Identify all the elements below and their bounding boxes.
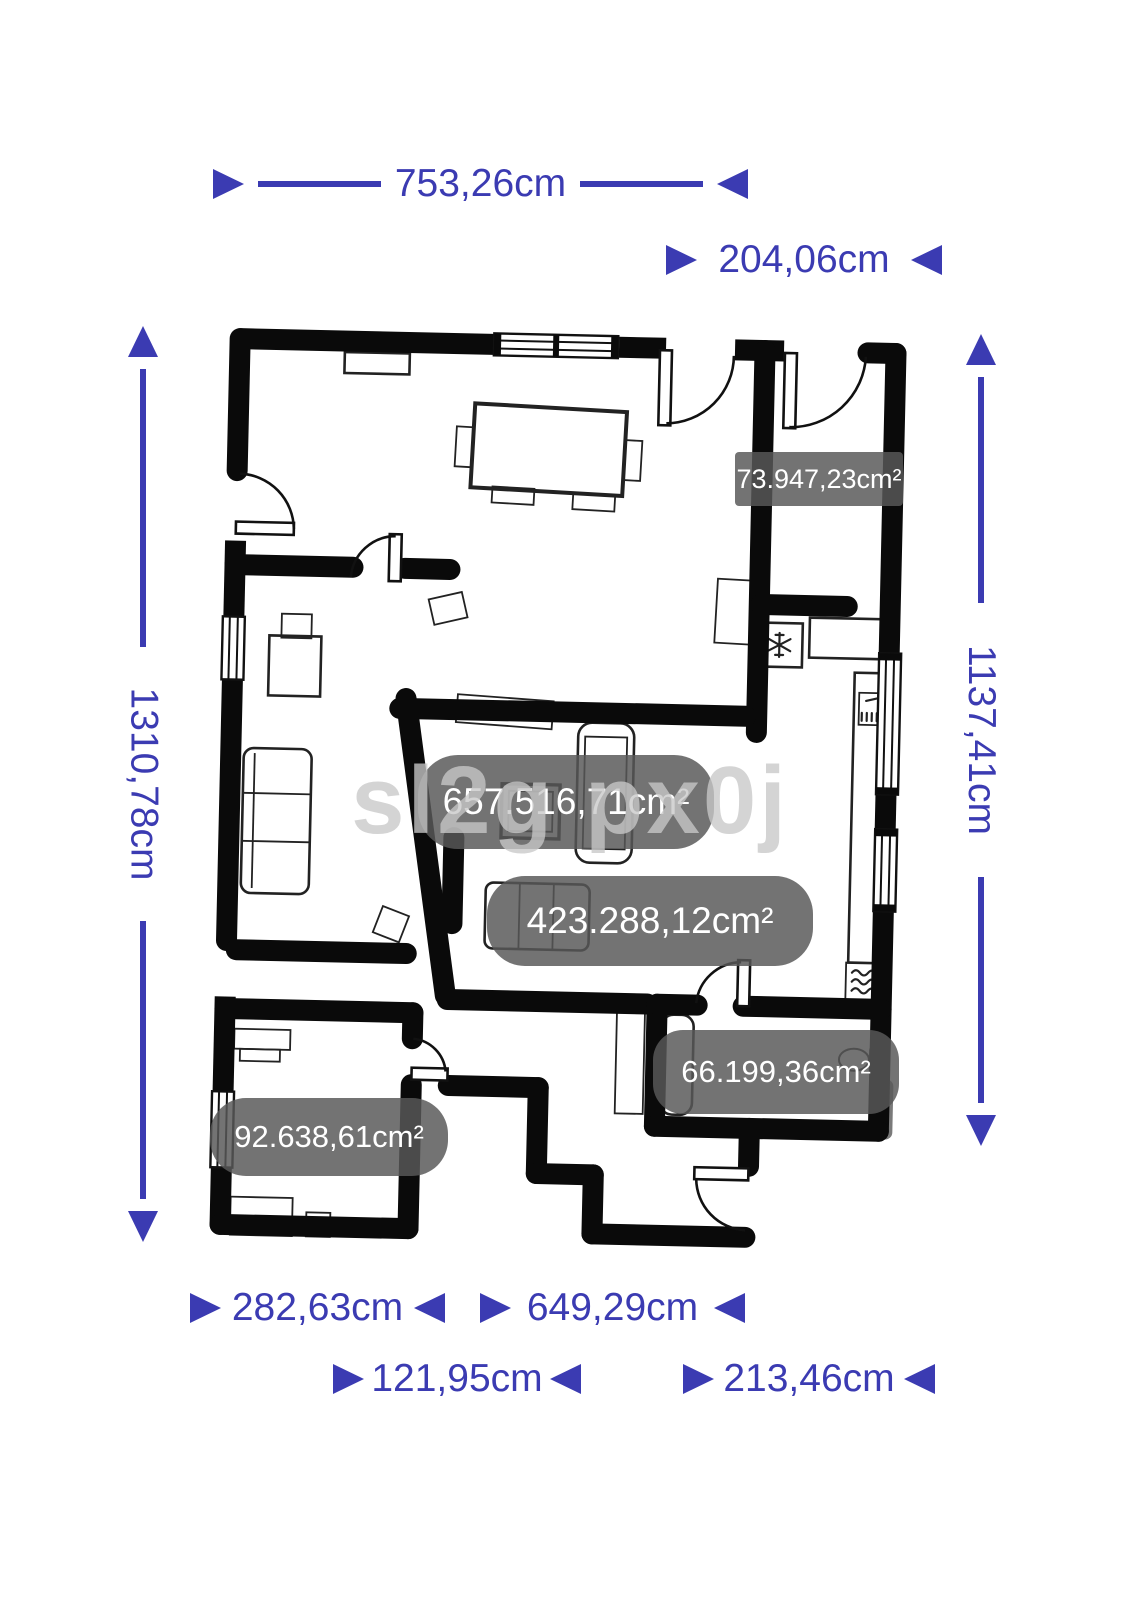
door-hall-b bbox=[783, 353, 866, 430]
arrow-left-icon bbox=[714, 1293, 745, 1323]
dim-line bbox=[978, 377, 984, 603]
floor-plan-page: 73.947,23cm² 657.516,71cm² 423.288,12cm²… bbox=[0, 0, 1128, 1600]
dim-line bbox=[140, 369, 146, 647]
arrow-right-icon bbox=[190, 1293, 221, 1323]
shelf bbox=[344, 352, 409, 374]
arrow-left-icon bbox=[550, 1364, 581, 1394]
area-badge-living: 657.516,71cm² bbox=[418, 755, 714, 849]
dim-line bbox=[978, 877, 984, 1103]
dim-bottom2-left: 121,95cm bbox=[333, 1357, 581, 1401]
door-hall-a bbox=[658, 350, 734, 427]
dim-top-total: 753,26cm bbox=[213, 162, 748, 206]
area-badge-bedroom: 92.638,61cm² bbox=[210, 1098, 448, 1176]
area-badge-bathroom: 66.199,36cm² bbox=[653, 1030, 899, 1114]
dim-label: 204,06cm bbox=[718, 238, 889, 282]
dim-bottom2-right: 213,46cm bbox=[683, 1357, 935, 1401]
arrow-right-icon bbox=[333, 1364, 364, 1394]
dim-label: 1137,41cm bbox=[959, 645, 1003, 835]
corridor-cabinet bbox=[615, 1005, 645, 1114]
dim-label: 282,63cm bbox=[232, 1286, 403, 1330]
arrow-down-icon bbox=[128, 1211, 158, 1242]
dim-bottom-center: 649,29cm bbox=[480, 1286, 745, 1330]
dim-label: 213,46cm bbox=[723, 1357, 894, 1401]
arrow-right-icon bbox=[683, 1364, 714, 1394]
arrow-down-icon bbox=[966, 1115, 996, 1146]
arrow-left-icon bbox=[911, 245, 942, 275]
arrow-left-icon bbox=[904, 1364, 935, 1394]
arrow-left-icon bbox=[717, 169, 748, 199]
arrow-up-icon bbox=[966, 334, 996, 365]
counter-top bbox=[809, 618, 888, 660]
door-entry bbox=[693, 1167, 748, 1230]
door-living bbox=[236, 474, 295, 535]
dim-line bbox=[580, 181, 703, 187]
bedroom-desk-chair bbox=[240, 1049, 280, 1062]
area-badge-family: 423.288,12cm² bbox=[487, 876, 813, 966]
dim-bottom-left: 282,63cm bbox=[190, 1286, 445, 1330]
arrow-right-icon bbox=[213, 169, 244, 199]
dim-top-right: 204,06cm bbox=[666, 238, 942, 282]
dining-table bbox=[453, 402, 644, 513]
dim-label: 121,95cm bbox=[371, 1357, 542, 1401]
arrow-up-icon bbox=[128, 326, 158, 357]
dim-line bbox=[258, 181, 381, 187]
small-table bbox=[429, 592, 468, 625]
bedroom-desk bbox=[234, 1029, 290, 1050]
dim-line bbox=[140, 921, 146, 1199]
arrow-right-icon bbox=[480, 1293, 511, 1323]
sofa-left bbox=[241, 748, 312, 895]
dim-label: 1310,78cm bbox=[121, 688, 165, 881]
area-badge-hallway: 73.947,23cm² bbox=[735, 452, 903, 506]
dim-label: 649,29cm bbox=[527, 1286, 698, 1330]
dim-left-total: 1310,78cm bbox=[123, 326, 163, 1242]
dim-right-side: 1137,41cm bbox=[961, 334, 1001, 1146]
dim-label: 753,26cm bbox=[395, 162, 566, 206]
stool bbox=[373, 906, 409, 942]
window-top bbox=[494, 333, 618, 358]
arrow-left-icon bbox=[414, 1293, 445, 1323]
arrow-right-icon bbox=[666, 245, 697, 275]
desk bbox=[268, 635, 321, 696]
